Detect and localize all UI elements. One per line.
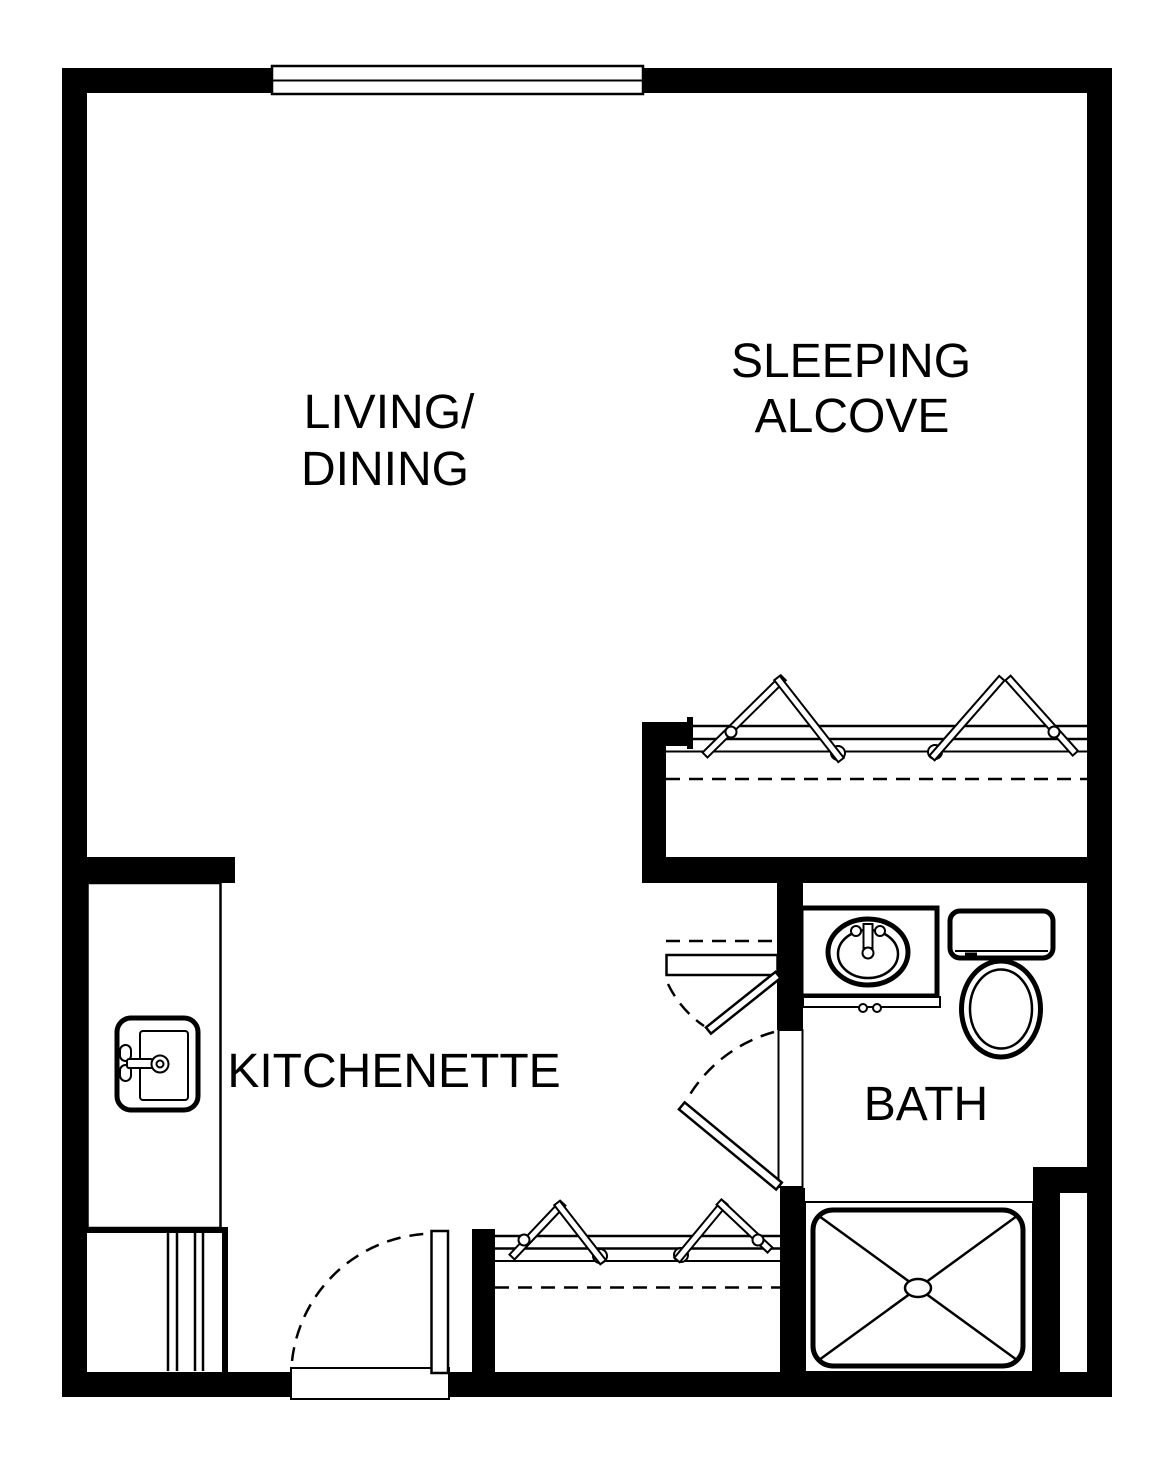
label-kitchenette: KITCHENETTE <box>227 1045 560 1098</box>
wall-top-left <box>62 68 272 93</box>
label-sleeping-alcove-line1: SLEEPING <box>731 335 971 388</box>
linen-closet-door <box>706 972 781 1034</box>
bath-doorway <box>679 1030 803 1189</box>
vanity-sink <box>801 908 940 1012</box>
faucet-spout <box>127 1059 153 1068</box>
floor-plan: LIVING/ DINING SLEEPING ALCOVE KITCHENET… <box>0 0 1175 1458</box>
entry-closet <box>495 1199 780 1287</box>
shower-drain <box>905 1279 931 1297</box>
wall-bottom-right <box>449 1372 1112 1397</box>
wall-right <box>1087 68 1112 1397</box>
flush-handle <box>965 953 977 958</box>
cabinet-knob <box>873 1004 881 1012</box>
rod-end-bracket <box>687 717 693 749</box>
wall-entry-closet-jamb <box>472 1229 495 1372</box>
clothes-hangers <box>703 675 845 762</box>
wall-shower-stub <box>1033 1167 1088 1193</box>
wall-bottom-left <box>62 1372 291 1397</box>
bath-fixtures <box>801 908 1053 1372</box>
label-bath: BATH <box>864 1078 988 1131</box>
faucet-spout <box>864 924 873 948</box>
sleeping-alcove-closet <box>666 675 1087 779</box>
wall-shower-pilaster <box>1033 1193 1060 1372</box>
door-swing-arc <box>668 984 704 1026</box>
closet-front <box>667 955 778 975</box>
faucet-tip <box>152 1056 169 1073</box>
shower-stall <box>805 1202 1033 1372</box>
wall-kitchen-stub <box>87 857 235 883</box>
toilet <box>950 911 1053 1057</box>
door-threshold <box>291 1368 449 1399</box>
label-sleeping-alcove-line2: ALCOVE <box>755 390 950 443</box>
door-opening <box>779 1030 803 1187</box>
clothes-hangers <box>928 676 1078 761</box>
faucet-handle <box>875 926 885 936</box>
door-swing-arc <box>686 1032 774 1101</box>
vanity-counter-edge <box>803 997 940 1007</box>
clothes-hangers <box>509 1201 607 1265</box>
kitchen-lower-cabinet <box>168 1233 203 1371</box>
window <box>272 66 643 94</box>
wall-kitchen-block-right <box>222 1227 228 1372</box>
linen-closet <box>666 941 780 1034</box>
kitchen-sink <box>117 1018 198 1110</box>
entry-door <box>432 1231 449 1373</box>
cabinet-knob <box>859 1004 867 1012</box>
toilet-bowl <box>962 961 1041 1057</box>
floor-plan-drawing: LIVING/ DINING SLEEPING ALCOVE KITCHENET… <box>0 0 1175 1458</box>
door-swing-arc <box>292 1234 424 1361</box>
wall-left <box>62 68 87 1397</box>
sink-drain <box>863 948 874 959</box>
bath-door <box>679 1102 782 1189</box>
wall-hall-bath-lower <box>780 1188 805 1372</box>
faucet-handle <box>851 926 861 936</box>
wall-inner-band <box>642 857 1088 883</box>
kitchenette-fixtures <box>88 883 221 1371</box>
entry-doorway <box>291 1231 449 1399</box>
wall-alcove-closet-stub <box>642 722 688 746</box>
wall-top-right <box>643 68 1112 93</box>
label-living-dining-line2: DINING <box>301 443 469 496</box>
label-living-dining-line1: LIVING/ <box>304 386 475 439</box>
clothes-hangers <box>674 1199 772 1262</box>
